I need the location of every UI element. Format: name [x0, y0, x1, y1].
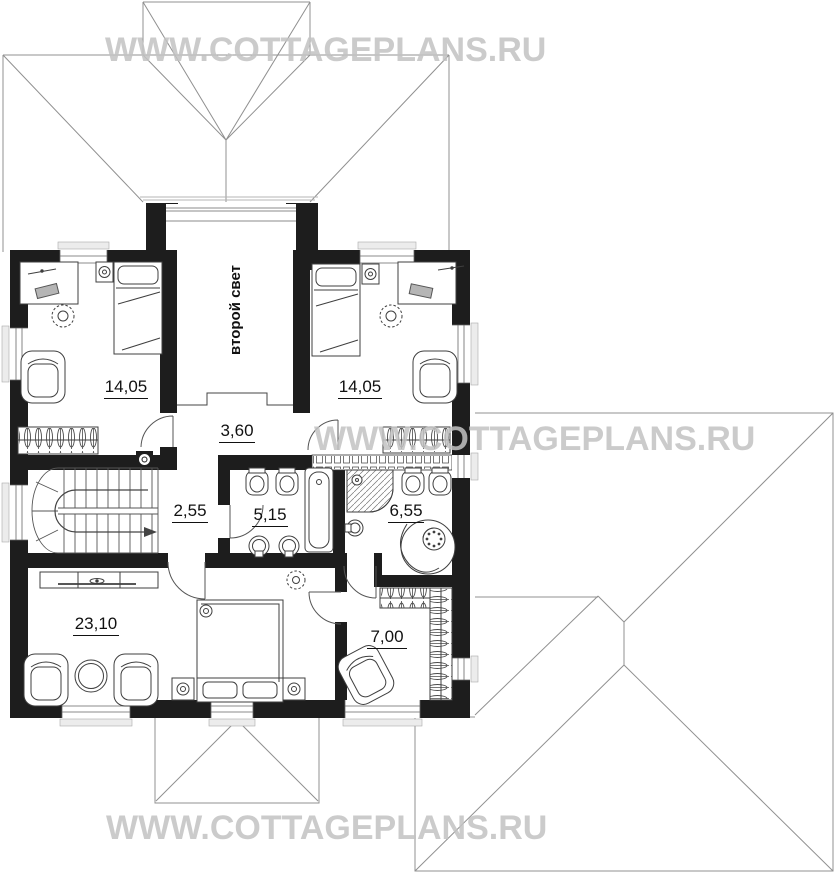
clothes-rack-symbol: [430, 588, 452, 700]
nightstand-symbol: [362, 264, 379, 284]
jacuzzi-symbol: [400, 520, 455, 574]
chimney-flue-icon: [139, 454, 150, 465]
room-label-bedroom-right: 14,05: [339, 377, 382, 396]
window-bottom-3: [345, 700, 420, 718]
toilet-symbol: [276, 468, 298, 495]
window-tower-band: [166, 204, 296, 222]
room-bedroom-left: [18, 262, 173, 454]
second-light-label: второй свет: [227, 265, 244, 355]
room-master-bedroom: [24, 571, 305, 706]
room-label-shower: 6,55: [389, 501, 422, 520]
toilet-symbol: [429, 468, 451, 495]
floor-plan-svg: 14,05 14,05 3,60 2,55 5,15 6,55 23,10 7,…: [0, 0, 834, 874]
door-arc-master: [168, 562, 205, 599]
desk-symbol: [398, 262, 464, 304]
closet-rack-symbol: [18, 427, 98, 454]
nightstand-symbol: [96, 262, 113, 282]
desk-chair-symbol: [380, 305, 402, 327]
room-label-master: 23,10: [75, 614, 118, 633]
room-label-bedroom-left: 14,05: [105, 377, 148, 396]
nightstand-symbol: [172, 678, 194, 700]
room-label-hall: 3,60: [220, 421, 253, 440]
stairs-direction-arrow: [55, 490, 157, 537]
floor-plan-page: 14,05 14,05 3,60 2,55 5,15 6,55 23,10 7,…: [0, 0, 834, 874]
bathtub-symbol: [305, 468, 333, 552]
second-light-edge: [177, 393, 293, 405]
armchair-symbol: [21, 351, 65, 403]
room-label-corridor: 2,55: [173, 501, 206, 520]
staircase: [32, 468, 158, 553]
double-bed-symbol: [197, 600, 283, 702]
door-arc: [344, 566, 376, 598]
window-bottom-2: [211, 700, 253, 718]
tv-unit-symbol: [40, 572, 158, 588]
watermark-bottom: WWW.COTTAGEPLANS.RU: [106, 809, 547, 847]
garage-roof: [415, 413, 833, 871]
door-arc: [309, 592, 341, 624]
armchair-symbol: [24, 654, 68, 706]
room-label-bathroom: 5,15: [253, 505, 286, 524]
window-right-mid: [452, 455, 470, 478]
watermarks: WWW.COTTAGEPLANS.RU WWW.COTTAGEPLANS.RU …: [105, 31, 755, 847]
bed-symbol: [312, 264, 360, 356]
tower-sill-lines: [140, 197, 318, 200]
sink-symbol: [345, 520, 363, 536]
bay-roof: [155, 718, 319, 803]
toilet-symbol: [402, 468, 424, 495]
round-table-symbol: [75, 660, 107, 692]
window-stairs: [10, 485, 28, 540]
nightstand-symbol: [283, 678, 305, 700]
watermark-top: WWW.COTTAGEPLANS.RU: [105, 31, 546, 69]
shower-symbol: [347, 470, 393, 512]
window-right-small: [452, 658, 470, 680]
desk-chair-symbol: [52, 305, 74, 327]
armchair-symbol: [413, 351, 457, 403]
desk-symbol: [20, 262, 78, 304]
toilet-symbol: [246, 468, 268, 495]
clothes-rack-symbol: [380, 588, 430, 608]
door-arc: [141, 416, 173, 447]
room-label-wardrobe: 7,00: [370, 627, 403, 646]
bed-symbol: [114, 262, 162, 354]
watermark-middle: WWW.COTTAGEPLANS.RU: [314, 420, 755, 458]
armchair-symbol: [114, 654, 158, 706]
plant-symbol: [287, 571, 305, 589]
